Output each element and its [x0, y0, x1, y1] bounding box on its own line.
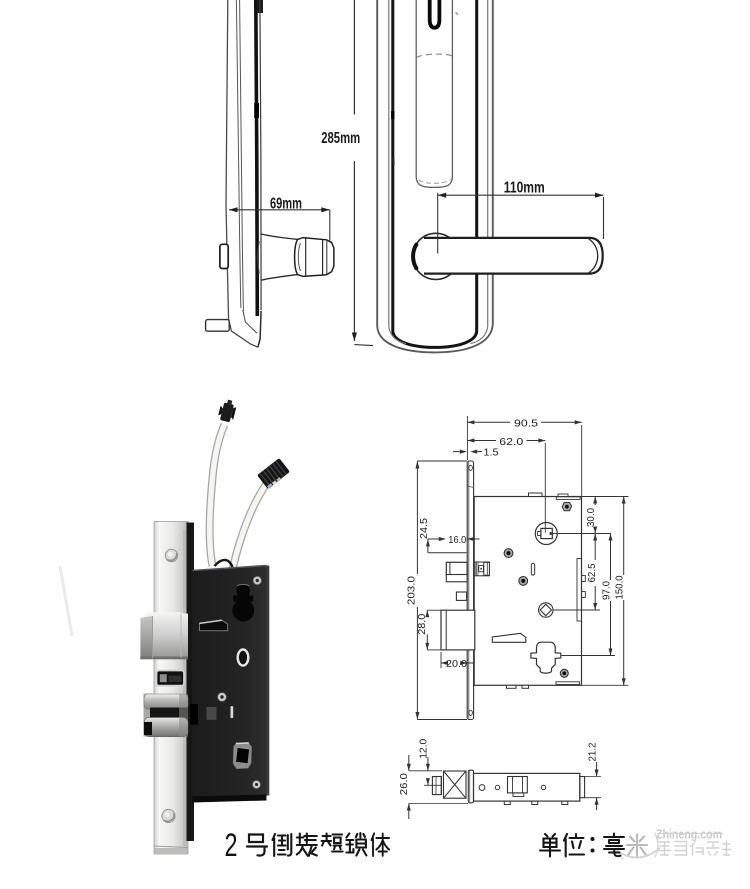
svg-text:21.2: 21.2 — [586, 742, 598, 761]
svg-text:90.5: 90.5 — [514, 417, 538, 429]
svg-text:26.0: 26.0 — [398, 773, 410, 795]
svg-text:28.0: 28.0 — [416, 614, 428, 635]
svg-text:Zhineng.com: Zhineng.com — [656, 828, 722, 842]
svg-text:30.0: 30.0 — [585, 508, 597, 527]
svg-text:150.0: 150.0 — [614, 575, 626, 599]
svg-text:203.0: 203.0 — [406, 576, 418, 605]
svg-text:24.5: 24.5 — [418, 518, 430, 539]
svg-text:20.0: 20.0 — [446, 658, 467, 670]
svg-text:12.0: 12.0 — [418, 739, 430, 759]
svg-text:62.5: 62.5 — [586, 563, 598, 582]
svg-text:97.0: 97.0 — [600, 581, 612, 600]
svg-text:285mm: 285mm — [321, 130, 360, 147]
svg-text:2: 2 — [225, 827, 238, 863]
svg-text:69mm: 69mm — [270, 195, 302, 212]
svg-text:1.5: 1.5 — [484, 447, 499, 459]
svg-text:110mm: 110mm — [504, 180, 545, 197]
svg-text:16.0: 16.0 — [448, 534, 466, 546]
svg-text:62.0: 62.0 — [499, 436, 523, 448]
